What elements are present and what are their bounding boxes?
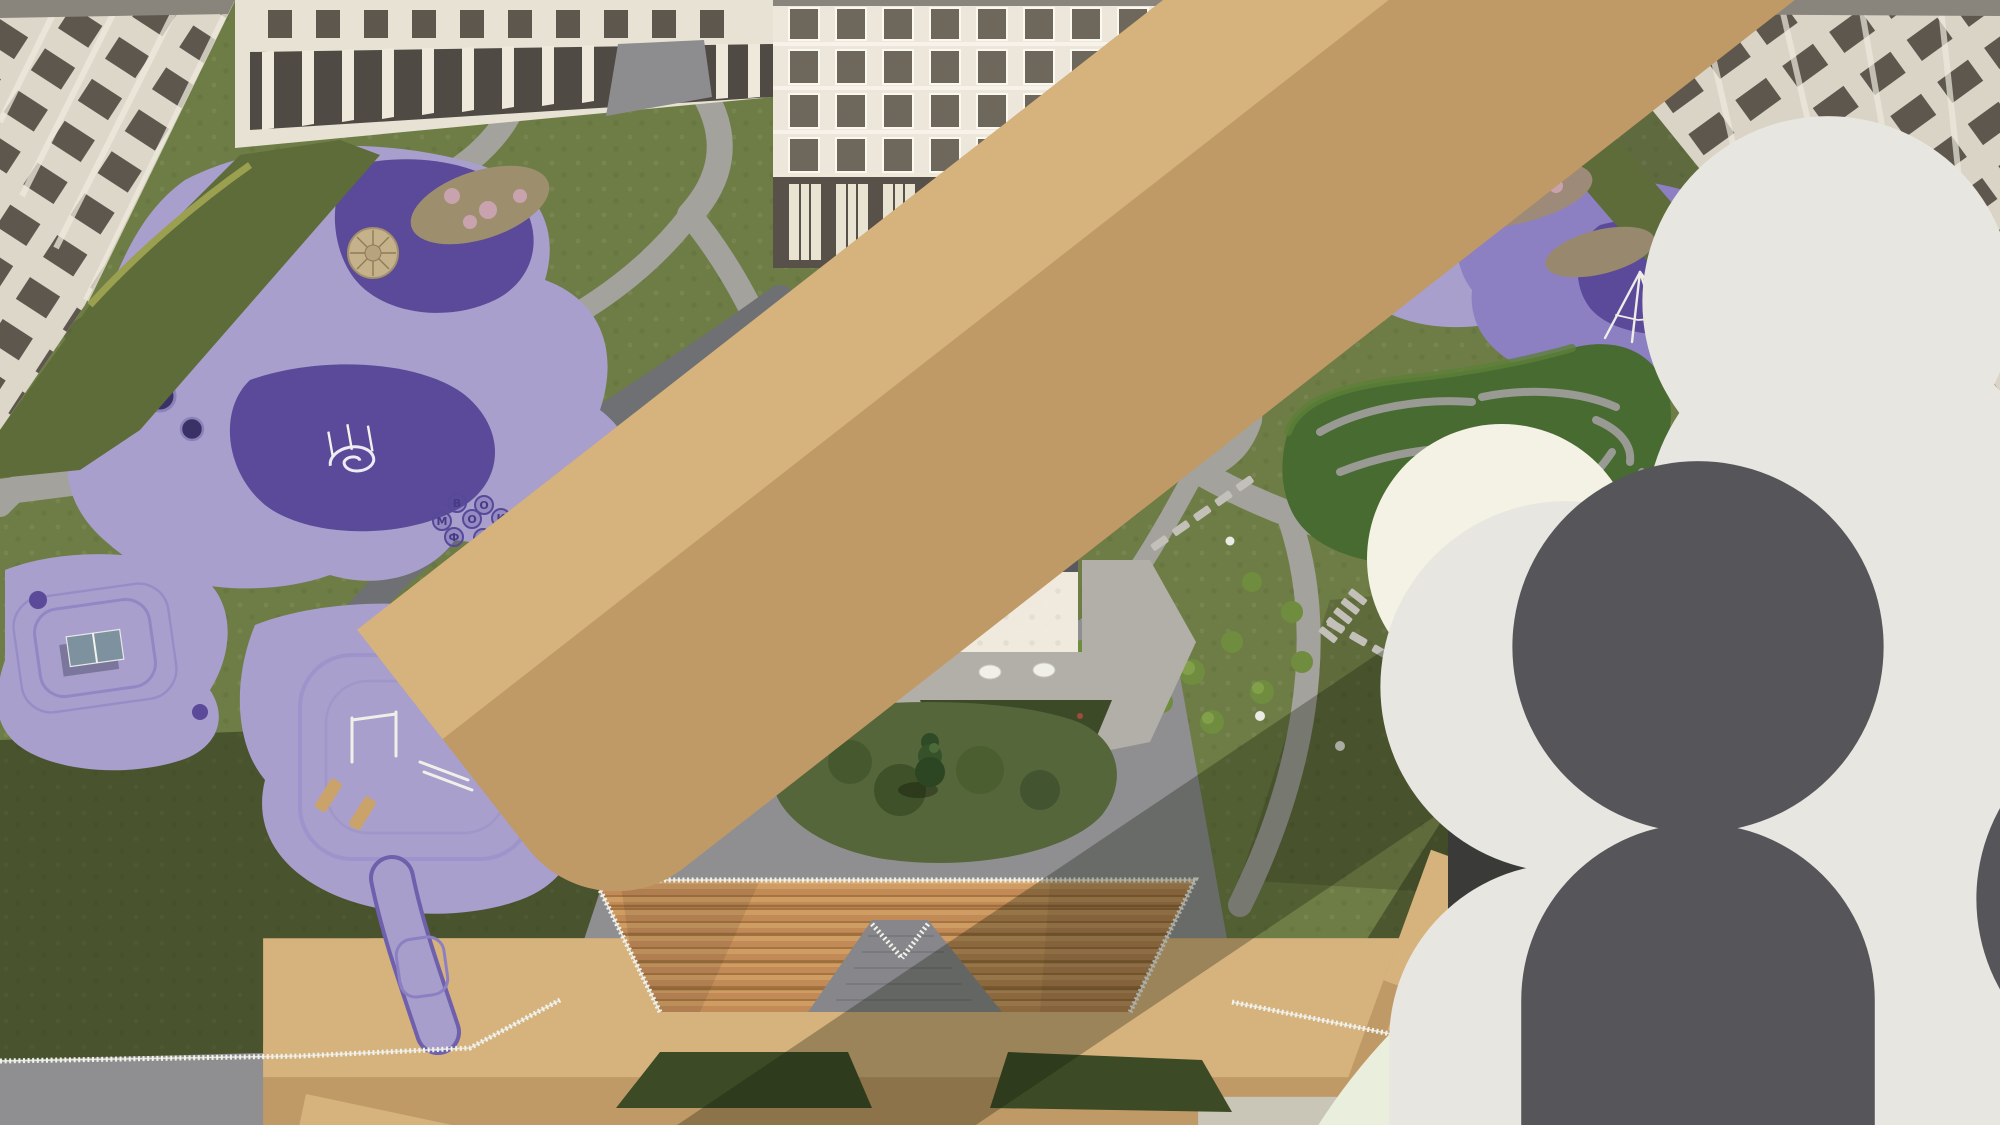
letter-tile: В — [448, 494, 466, 512]
letter-tile: М — [433, 512, 451, 530]
letter-tile: О — [463, 510, 481, 528]
aerial-scene: В О М О К Ф А — [0, 0, 2000, 1125]
svg-text:О: О — [467, 513, 476, 526]
svg-text:М: М — [437, 515, 448, 528]
courtyard-render: В О М О К Ф А — [0, 0, 2000, 1125]
svg-text:В: В — [453, 497, 461, 510]
trampoline-small — [181, 418, 203, 440]
court-dot — [192, 704, 208, 720]
letter-tile: Ф — [445, 528, 463, 546]
svg-text:О: О — [479, 499, 488, 512]
carousel — [348, 228, 398, 278]
court-dot — [29, 591, 47, 609]
svg-text:Ф: Ф — [449, 531, 460, 544]
